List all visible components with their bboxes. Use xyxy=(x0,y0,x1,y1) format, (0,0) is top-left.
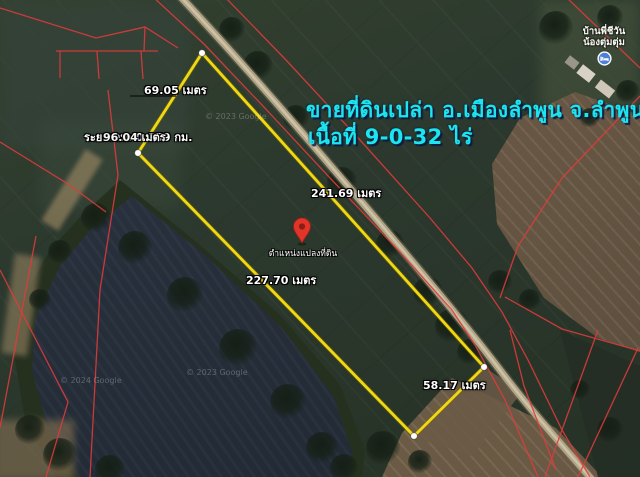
tree xyxy=(81,203,111,233)
tree xyxy=(413,277,443,307)
tree xyxy=(457,339,483,365)
tree xyxy=(243,51,273,81)
tree xyxy=(435,309,469,343)
tree xyxy=(306,432,338,464)
pin-caption: ตำแหน่งแปลงที่ดิน xyxy=(263,246,343,260)
vertex-dot xyxy=(481,364,488,371)
tree xyxy=(167,277,203,313)
location-pin[interactable] xyxy=(294,218,311,246)
tree xyxy=(408,450,432,474)
tree xyxy=(118,231,152,265)
tree xyxy=(219,17,245,43)
vertex-dot xyxy=(411,433,418,440)
imagery-watermark: © 2023 Google xyxy=(186,368,248,377)
place-marker[interactable]: บ้านพี่ชีวัน น้องตุ่มตุ่ม xyxy=(564,26,640,66)
tree xyxy=(519,289,541,311)
tree xyxy=(270,384,306,420)
satellite-map[interactable]: 69.05 เมตร ระยะรวม: 0.359 กม. 96.04 เมตร… xyxy=(0,0,640,477)
tree xyxy=(48,240,72,264)
tree xyxy=(570,380,590,400)
tree xyxy=(43,438,77,472)
imagery-watermark: © 2024 Google xyxy=(60,376,122,385)
tree xyxy=(366,431,400,465)
tree xyxy=(15,415,45,445)
imagery-watermark: © 2023 Google xyxy=(205,112,267,121)
tree xyxy=(95,455,125,477)
tree xyxy=(29,289,51,311)
place-name-line2: น้องตุ่มตุ่ม xyxy=(564,37,640,48)
measurement-label-top-left: 69.05 เมตร xyxy=(144,81,207,99)
place-name-line1: บ้านพี่ชีวัน xyxy=(564,26,640,37)
vertex-dot xyxy=(199,50,206,57)
measurement-label-top-right: 241.69 เมตร xyxy=(311,184,381,202)
tree xyxy=(376,230,404,258)
measurement-label-overlapping: 96.04 เมตร xyxy=(103,128,166,146)
tree xyxy=(219,329,257,367)
measurement-label-bottom-right: 58.17 เมตร xyxy=(423,376,486,394)
ad-text-line2: เนื้อที่ 9-0-32 ไร่ xyxy=(308,121,473,154)
tree xyxy=(488,270,512,294)
tree xyxy=(597,417,623,443)
lodging-icon[interactable] xyxy=(597,51,612,66)
measurement-label-bottom-left: 227.70 เมตร xyxy=(246,271,316,289)
